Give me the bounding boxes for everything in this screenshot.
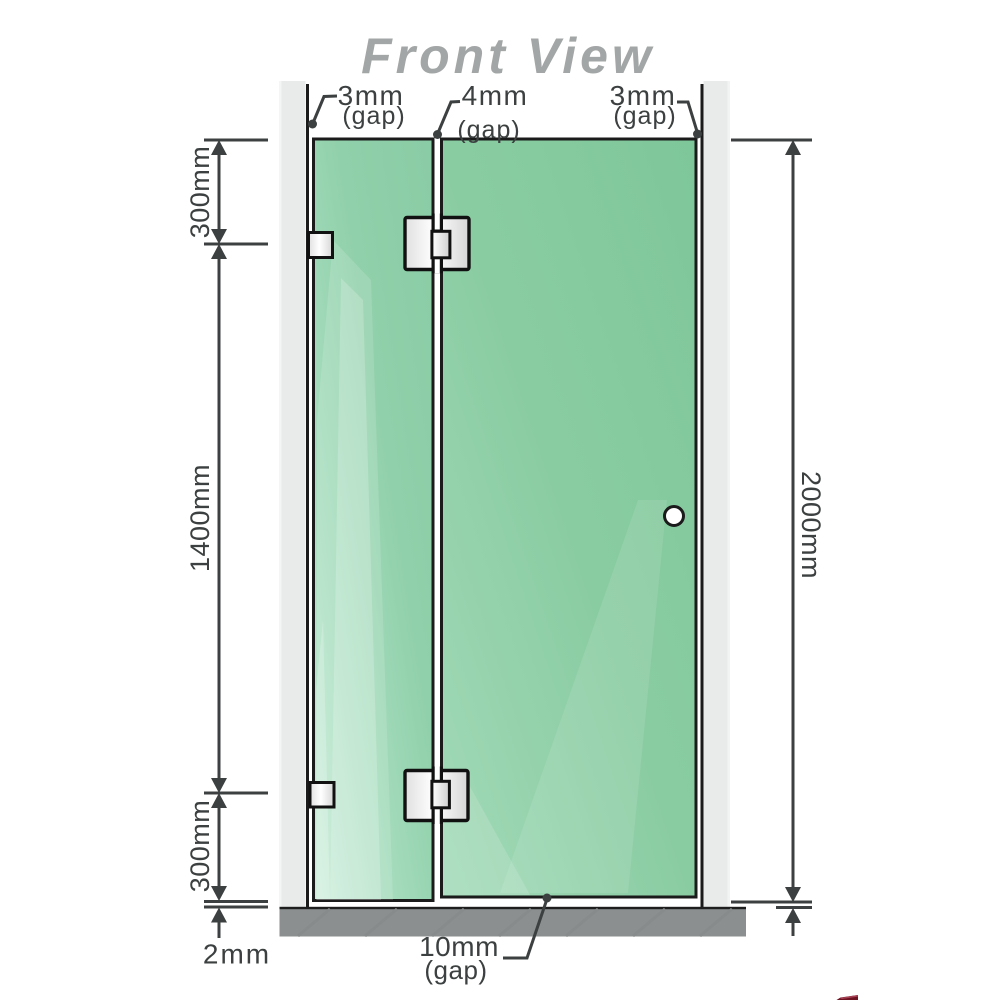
svg-text:2mm: 2mm (203, 939, 271, 970)
svg-text:Front View: Front View (361, 28, 655, 84)
svg-text:(gap): (gap) (613, 102, 676, 130)
svg-text:(gap): (gap) (424, 955, 487, 985)
svg-text:2000mm: 2000mm (796, 471, 826, 579)
svg-text:4mm: 4mm (462, 80, 529, 111)
svg-text:(gap): (gap) (457, 116, 520, 144)
svg-text:300mm: 300mm (185, 146, 215, 239)
svg-text:(gap): (gap) (342, 102, 405, 130)
svg-text:300mm: 300mm (185, 800, 215, 893)
svg-text:1400mm: 1400mm (185, 464, 215, 572)
